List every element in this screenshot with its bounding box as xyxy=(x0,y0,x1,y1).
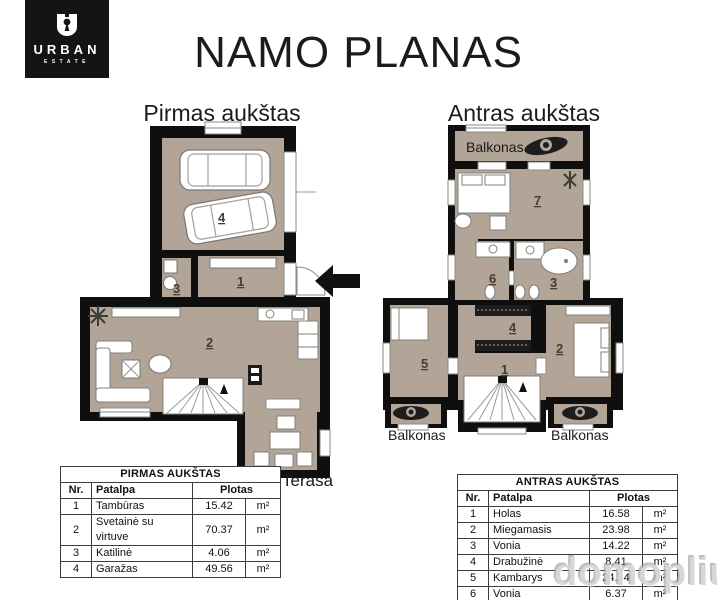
cell-nr: 1 xyxy=(61,499,92,515)
cell-nr: 3 xyxy=(61,546,92,562)
table-row: 2 Miegamasis 23.98 m² xyxy=(458,523,678,539)
table-row: 3 Katilinė 4.06 m² xyxy=(61,546,281,562)
balcony-left-label: Balkonas xyxy=(388,427,446,443)
table-row: 1 Tambūras 15.42 m² xyxy=(61,499,281,515)
col-header-area: Plotas xyxy=(590,491,678,507)
cell-unit: m² xyxy=(246,546,281,562)
room-label-1: 1 xyxy=(501,362,508,377)
cell-area: 4.06 xyxy=(193,546,246,562)
cell-unit: m² xyxy=(246,562,281,578)
bed-icon xyxy=(391,308,428,340)
table-row: 4 Garažas 49.56 m² xyxy=(61,562,281,578)
table-header-row: Nr. Patalpa Plotas xyxy=(61,483,281,499)
room-label-7: 7 xyxy=(534,193,541,208)
coffee-table-icon xyxy=(122,360,140,378)
col-header-room: Patalpa xyxy=(92,483,193,499)
shelf-icon xyxy=(566,306,610,315)
armchair-icon xyxy=(149,355,171,373)
cell-area: 23.98 xyxy=(590,523,643,539)
cell-nr: 2 xyxy=(61,515,92,546)
plant-icon xyxy=(88,306,108,326)
cell-area: 49.56 xyxy=(193,562,246,578)
balcony-top-label: Balkonas xyxy=(466,139,524,155)
cell-nr: 2 xyxy=(458,523,489,539)
cell-area: 70.37 xyxy=(193,515,246,546)
cell-nr: 3 xyxy=(458,539,489,555)
room-label-4: 4 xyxy=(509,320,517,335)
cell-name: Garažas xyxy=(92,562,193,578)
room-label-2: 2 xyxy=(556,341,563,356)
stairs-icon xyxy=(464,376,540,422)
cell-unit: m² xyxy=(643,523,678,539)
room-label-boiler: 3 xyxy=(173,281,180,296)
closet-icon xyxy=(210,258,276,268)
kitchen-appliance-icon xyxy=(248,365,262,385)
table-title-row: ANTRAS AUKŠTAS xyxy=(458,475,678,491)
cell-name: Tambūras xyxy=(92,499,193,515)
page-title: NAMO PLANAS xyxy=(0,28,717,78)
table-header-row: Nr. Patalpa Plotas xyxy=(458,491,678,507)
cell-nr: 1 xyxy=(458,507,489,523)
col-header-nr: Nr. xyxy=(458,491,489,507)
cell-name: Svetainė su virtuve xyxy=(92,515,193,546)
room-label-5: 5 xyxy=(421,356,428,371)
table-row: 1 Holas 16.58 m² xyxy=(458,507,678,523)
first-floor-areas-table: PIRMAS AUKŠTAS Nr. Patalpa Plotas 1 Tamb… xyxy=(60,466,281,578)
cell-name: Holas xyxy=(489,507,590,523)
cell-nr: 6 xyxy=(458,587,489,600)
second-floor-plan: Balkonas 7 6 3 5 4 1 2 Balkonas Balkonas xyxy=(378,118,628,448)
room-label-3: 3 xyxy=(550,275,557,290)
cell-nr: 5 xyxy=(458,571,489,587)
room-label-6: 6 xyxy=(489,271,496,286)
cell-nr: 4 xyxy=(458,555,489,571)
cell-nr: 4 xyxy=(61,562,92,578)
stairs-icon xyxy=(163,378,243,414)
terrace-label: Terasa xyxy=(282,471,334,490)
col-header-nr: Nr. xyxy=(61,483,92,499)
first-floor-plan: 4 1 3 2 Terasa xyxy=(70,120,370,492)
col-header-area: Plotas xyxy=(193,483,281,499)
car-icon xyxy=(180,150,270,190)
floorplan-page: URBAN ESTATE NAMO PLANAS Pirmas aukštas … xyxy=(0,0,717,600)
table-title: ANTRAS AUKŠTAS xyxy=(458,475,678,491)
cell-name: Miegamasis xyxy=(489,523,590,539)
watermark: domoplius.lt xyxy=(553,550,717,595)
table-title-row: PIRMAS AUKŠTAS xyxy=(61,467,281,483)
table-title: PIRMAS AUKŠTAS xyxy=(61,467,281,483)
cell-name: Katilinė xyxy=(92,546,193,562)
table-row: 2 Svetainė su virtuve 70.37 m² xyxy=(61,515,281,546)
cell-area: 16.58 xyxy=(590,507,643,523)
bed-icon xyxy=(574,323,609,377)
room-label-living: 2 xyxy=(206,335,213,350)
cell-unit: m² xyxy=(246,515,281,546)
sideboard-icon xyxy=(112,308,180,317)
room-label-hall: 1 xyxy=(237,274,244,289)
room-label-garage: 4 xyxy=(218,210,226,225)
cell-unit: m² xyxy=(643,507,678,523)
cell-unit: m² xyxy=(246,499,281,515)
col-header-room: Patalpa xyxy=(489,491,590,507)
balcony-right-label: Balkonas xyxy=(551,427,609,443)
cell-area: 15.42 xyxy=(193,499,246,515)
